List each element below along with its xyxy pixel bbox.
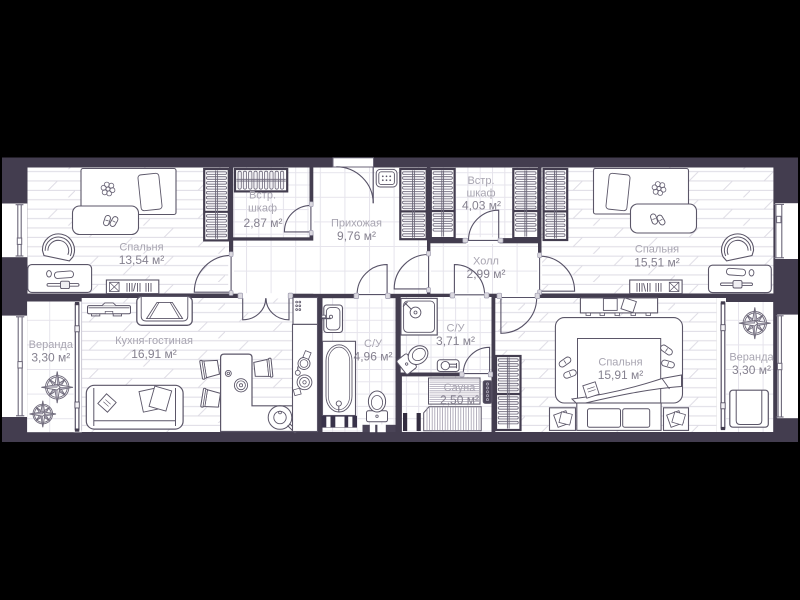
- svg-text:3,30 м²: 3,30 м²: [732, 363, 771, 377]
- svg-text:3,30 м²: 3,30 м²: [31, 351, 70, 365]
- svg-text:Кухня-гостиная: Кухня-гостиная: [115, 335, 193, 347]
- svg-text:2,87 м²: 2,87 м²: [244, 216, 283, 230]
- svg-text:Спальня: Спальня: [635, 244, 679, 256]
- svg-text:С/У: С/У: [364, 338, 383, 350]
- svg-text:4,03 м²: 4,03 м²: [462, 199, 501, 213]
- svg-text:Встр.: Встр.: [249, 190, 276, 202]
- svg-text:Веранда: Веранда: [729, 352, 774, 364]
- svg-text:2,50 м²: 2,50 м²: [440, 393, 479, 407]
- svg-text:15,51 м²: 15,51 м²: [634, 256, 680, 270]
- svg-text:Встр.: Встр.: [467, 175, 494, 187]
- svg-text:Холл: Холл: [473, 256, 499, 268]
- svg-text:Спальня: Спальня: [119, 242, 163, 254]
- svg-text:Веранда: Веранда: [29, 339, 74, 351]
- svg-text:шкаф: шкаф: [248, 203, 277, 215]
- svg-text:13,54 м²: 13,54 м²: [119, 253, 165, 267]
- svg-text:15,91 м²: 15,91 м²: [598, 368, 644, 382]
- svg-text:4,96 м²: 4,96 м²: [354, 350, 393, 364]
- svg-text:16,91 м²: 16,91 м²: [131, 347, 177, 361]
- svg-text:Спальня: Спальня: [598, 357, 642, 369]
- svg-text:2,99 м²: 2,99 м²: [467, 267, 506, 281]
- svg-text:С/У: С/У: [447, 323, 466, 335]
- svg-text:Прихожая: Прихожая: [331, 218, 382, 230]
- svg-text:3,71 м²: 3,71 м²: [436, 334, 475, 348]
- svg-text:9,76 м²: 9,76 м²: [337, 229, 376, 243]
